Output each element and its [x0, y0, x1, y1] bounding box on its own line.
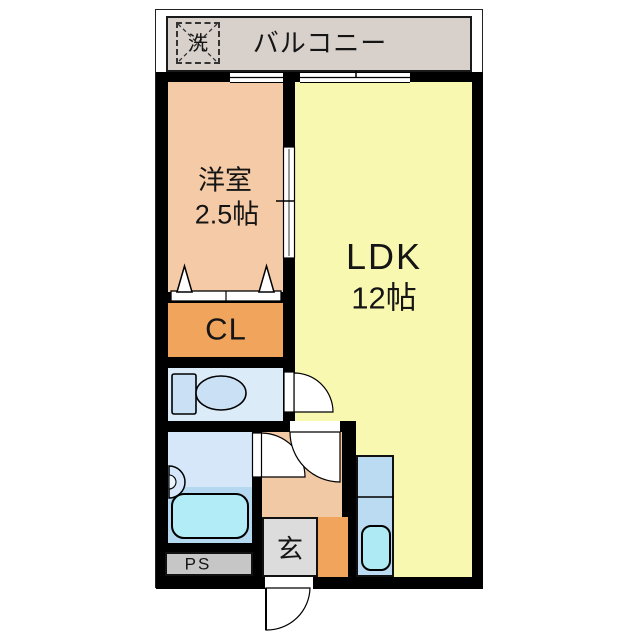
door-gap-hall-ldk — [290, 421, 340, 432]
kitchen-counter — [356, 455, 394, 577]
western-room-label: 洋室 — [198, 168, 252, 195]
western-room-size: 2.5帖 — [195, 202, 260, 229]
entrance-door-swing — [266, 588, 310, 630]
window-western — [230, 72, 283, 83]
closet-label: CL — [205, 314, 247, 345]
ldk-label: LDK — [346, 239, 422, 275]
pipe-space-label: PS — [185, 556, 212, 573]
ldk-size: 12帖 — [351, 283, 416, 314]
washer-label: 洗 — [188, 34, 208, 54]
balcony-label: バルコニー — [253, 30, 387, 56]
floor-plan: 洗 バルコニー 洋室 2.5帖 LDK 12帖 CL 玄 PS — [0, 0, 640, 640]
bathroom-tub-area — [168, 487, 252, 543]
window-ldk — [300, 72, 410, 83]
bathroom — [168, 432, 252, 487]
shoe-cabinet — [318, 517, 348, 577]
toilet-room — [168, 368, 283, 421]
entrance-label: 玄 — [277, 536, 303, 562]
door-gap-entrance — [265, 577, 313, 589]
hallway — [262, 432, 342, 517]
